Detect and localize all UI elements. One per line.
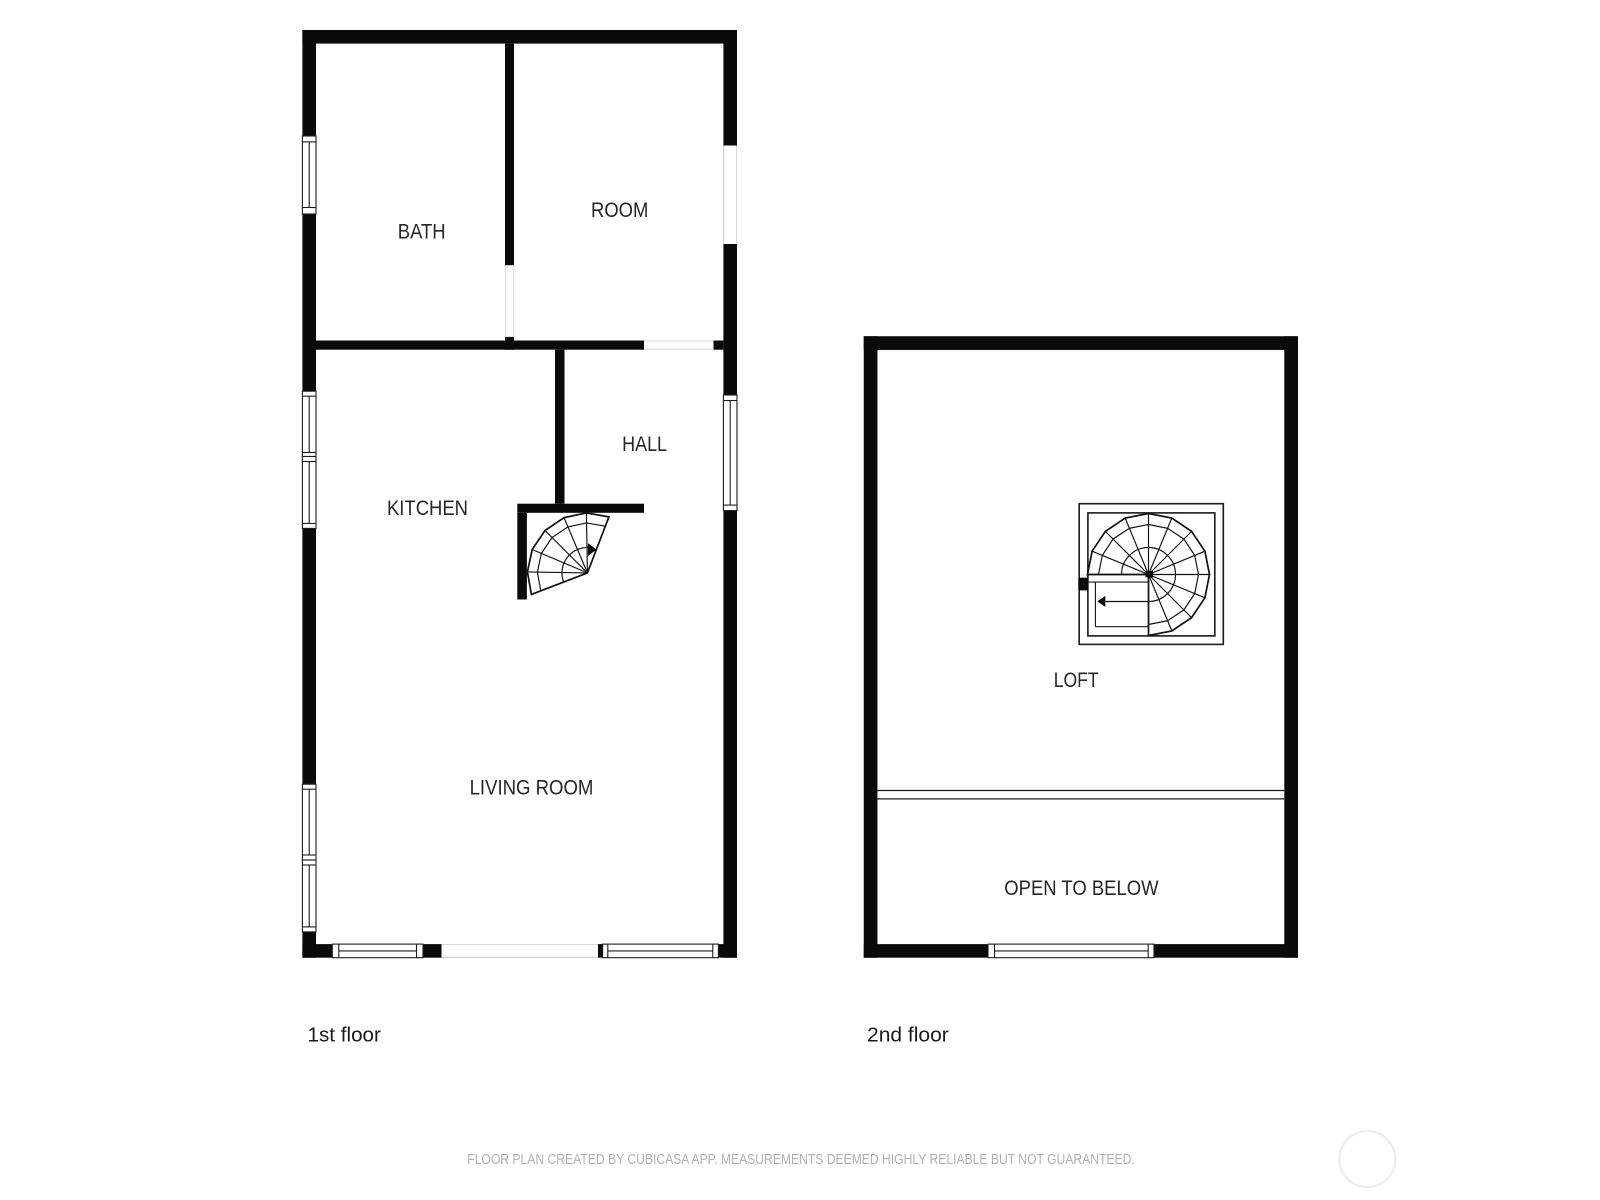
svg-text:FLOOR PLAN CREATED BY CUBICASA: FLOOR PLAN CREATED BY CUBICASA APP. MEAS… bbox=[467, 1151, 1135, 1168]
svg-text:LOFT: LOFT bbox=[1054, 669, 1099, 692]
svg-text:KITCHEN: KITCHEN bbox=[387, 497, 468, 520]
svg-text:LIVING ROOM: LIVING ROOM bbox=[470, 776, 594, 799]
svg-text:OPEN TO BELOW: OPEN TO BELOW bbox=[1004, 877, 1158, 900]
svg-text:HALL: HALL bbox=[622, 433, 667, 456]
svg-text:1st floor: 1st floor bbox=[308, 1024, 382, 1046]
svg-text:BATH: BATH bbox=[398, 220, 446, 243]
svg-text:2nd floor: 2nd floor bbox=[867, 1024, 949, 1046]
svg-text:ROOM: ROOM bbox=[591, 199, 648, 222]
